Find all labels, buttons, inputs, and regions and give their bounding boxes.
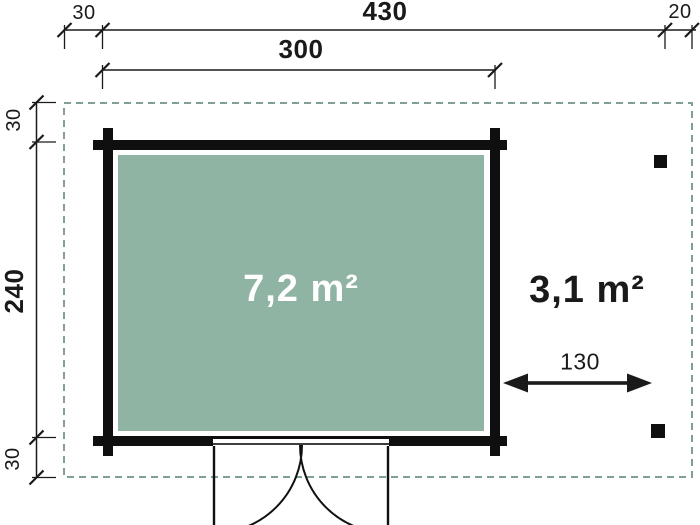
dim-ticks-top — [58, 23, 700, 77]
area-label-interior: 7,2 m² — [243, 270, 359, 308]
canopy-width-arrow — [503, 374, 652, 393]
canopy-post-bottom — [651, 424, 665, 438]
door-swing-arc-left — [214, 445, 302, 525]
wall-bottom-right — [389, 436, 507, 446]
door-swing-arc-right — [300, 445, 388, 525]
arrow-head-right — [627, 374, 652, 393]
wall-left — [103, 128, 113, 456]
double-door — [214, 445, 388, 525]
wall-bottom-left — [93, 436, 213, 446]
arrow-head-left — [503, 374, 528, 393]
arrow-shaft — [516, 381, 640, 385]
area-label-canopy: 3,1 m² — [529, 271, 645, 309]
door-lintel-bar — [213, 436, 389, 439]
floor-plan-canvas — [0, 0, 700, 525]
dim-label-left-height: 240 — [1, 269, 27, 314]
dim-label-left-top-offset: 30 — [4, 108, 24, 131]
floor-plan-diagram: 30 430 20 300 30 240 30 7,2 m² 3,1 m² 13… — [0, 0, 700, 525]
dim-label-left-bottom-offset: 30 — [3, 447, 23, 470]
dim-extension-lines-left — [32, 103, 56, 478]
dim-extension-lines-top — [65, 25, 693, 89]
wall-top — [93, 140, 507, 150]
dim-label-top-inner-width: 300 — [279, 36, 324, 62]
dim-label-canopy-width: 130 — [560, 351, 600, 374]
dim-label-top-right-offset: 20 — [668, 2, 691, 22]
dim-label-top-total: 430 — [363, 0, 408, 24]
door-sill-line — [213, 443, 389, 445]
wall-right — [490, 128, 500, 456]
canopy-post-top — [654, 155, 667, 168]
dim-label-top-left-offset: 30 — [72, 3, 95, 23]
